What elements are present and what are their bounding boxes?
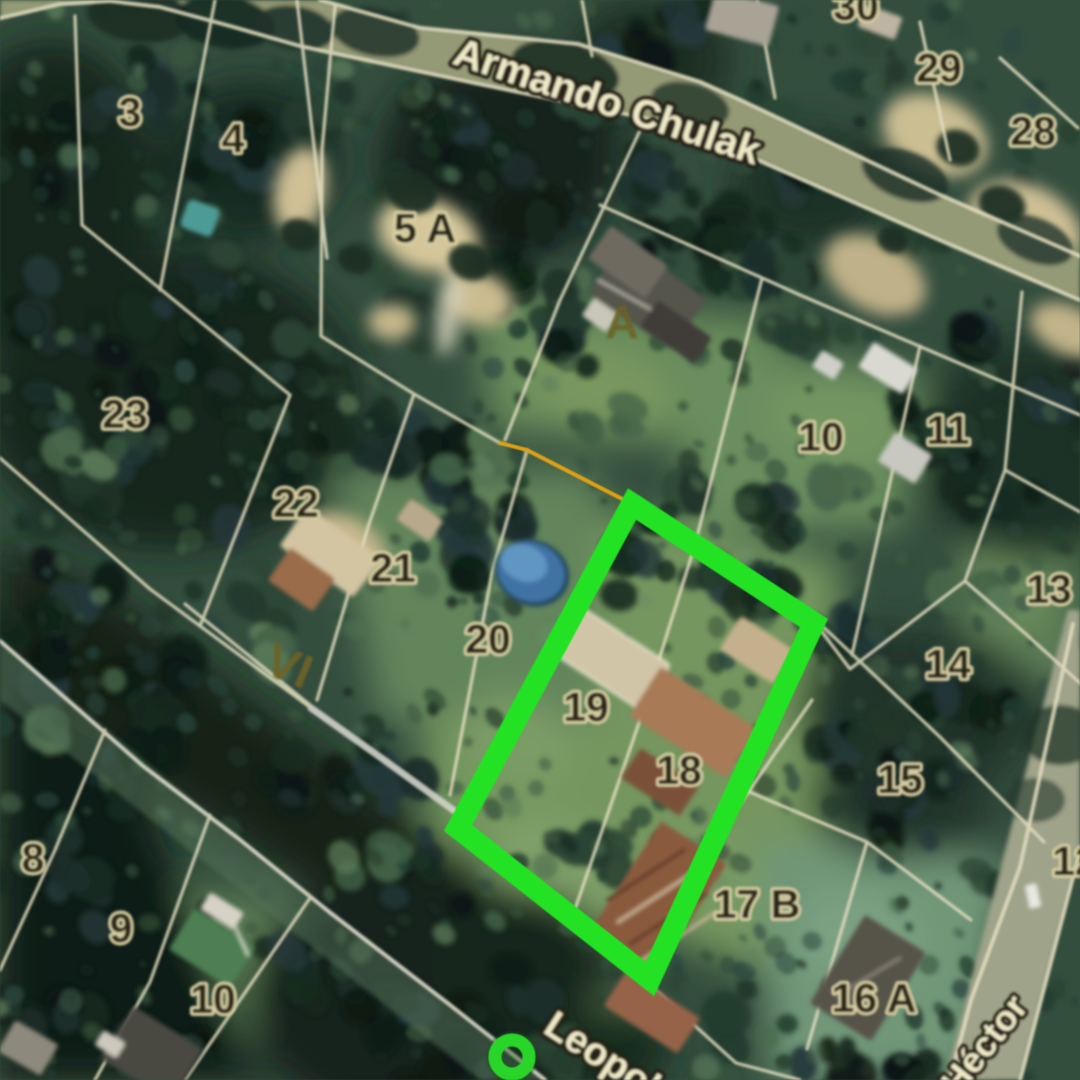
svg-text:9: 9 <box>110 905 133 951</box>
svg-text:28: 28 <box>1010 108 1056 154</box>
svg-text:15: 15 <box>877 756 923 802</box>
svg-text:8: 8 <box>22 835 45 881</box>
svg-text:3: 3 <box>119 89 142 135</box>
svg-text:10: 10 <box>798 414 844 460</box>
svg-text:19: 19 <box>563 684 609 730</box>
svg-text:20: 20 <box>465 616 511 662</box>
svg-text:17 B: 17 B <box>714 881 801 927</box>
svg-text:A: A <box>605 296 638 348</box>
svg-text:14: 14 <box>925 641 971 687</box>
svg-text:18: 18 <box>656 747 702 793</box>
svg-text:5 A: 5 A <box>394 205 456 251</box>
svg-text:12: 12 <box>1052 838 1080 884</box>
svg-text:13: 13 <box>1026 566 1072 612</box>
svg-text:22: 22 <box>273 480 319 526</box>
svg-text:21: 21 <box>370 545 416 591</box>
svg-text:4: 4 <box>222 115 245 161</box>
svg-text:29: 29 <box>916 45 962 91</box>
svg-text:11: 11 <box>926 407 969 453</box>
svg-text:23: 23 <box>102 391 148 437</box>
svg-text:30: 30 <box>833 0 879 29</box>
svg-text:16 A: 16 A <box>831 975 916 1021</box>
svg-text:10: 10 <box>190 976 236 1022</box>
